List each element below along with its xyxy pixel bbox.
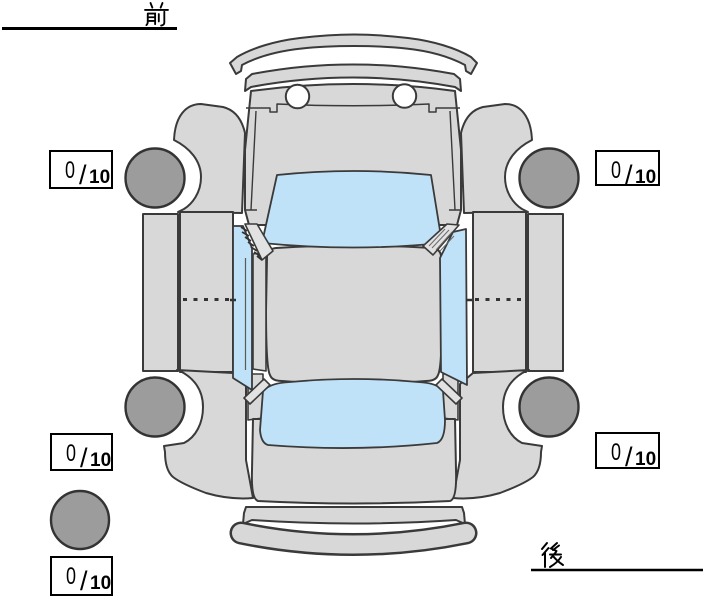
svg-text:0: 0 (65, 157, 75, 184)
svg-text:10: 10 (89, 167, 110, 188)
svg-text:/: / (79, 160, 87, 190)
